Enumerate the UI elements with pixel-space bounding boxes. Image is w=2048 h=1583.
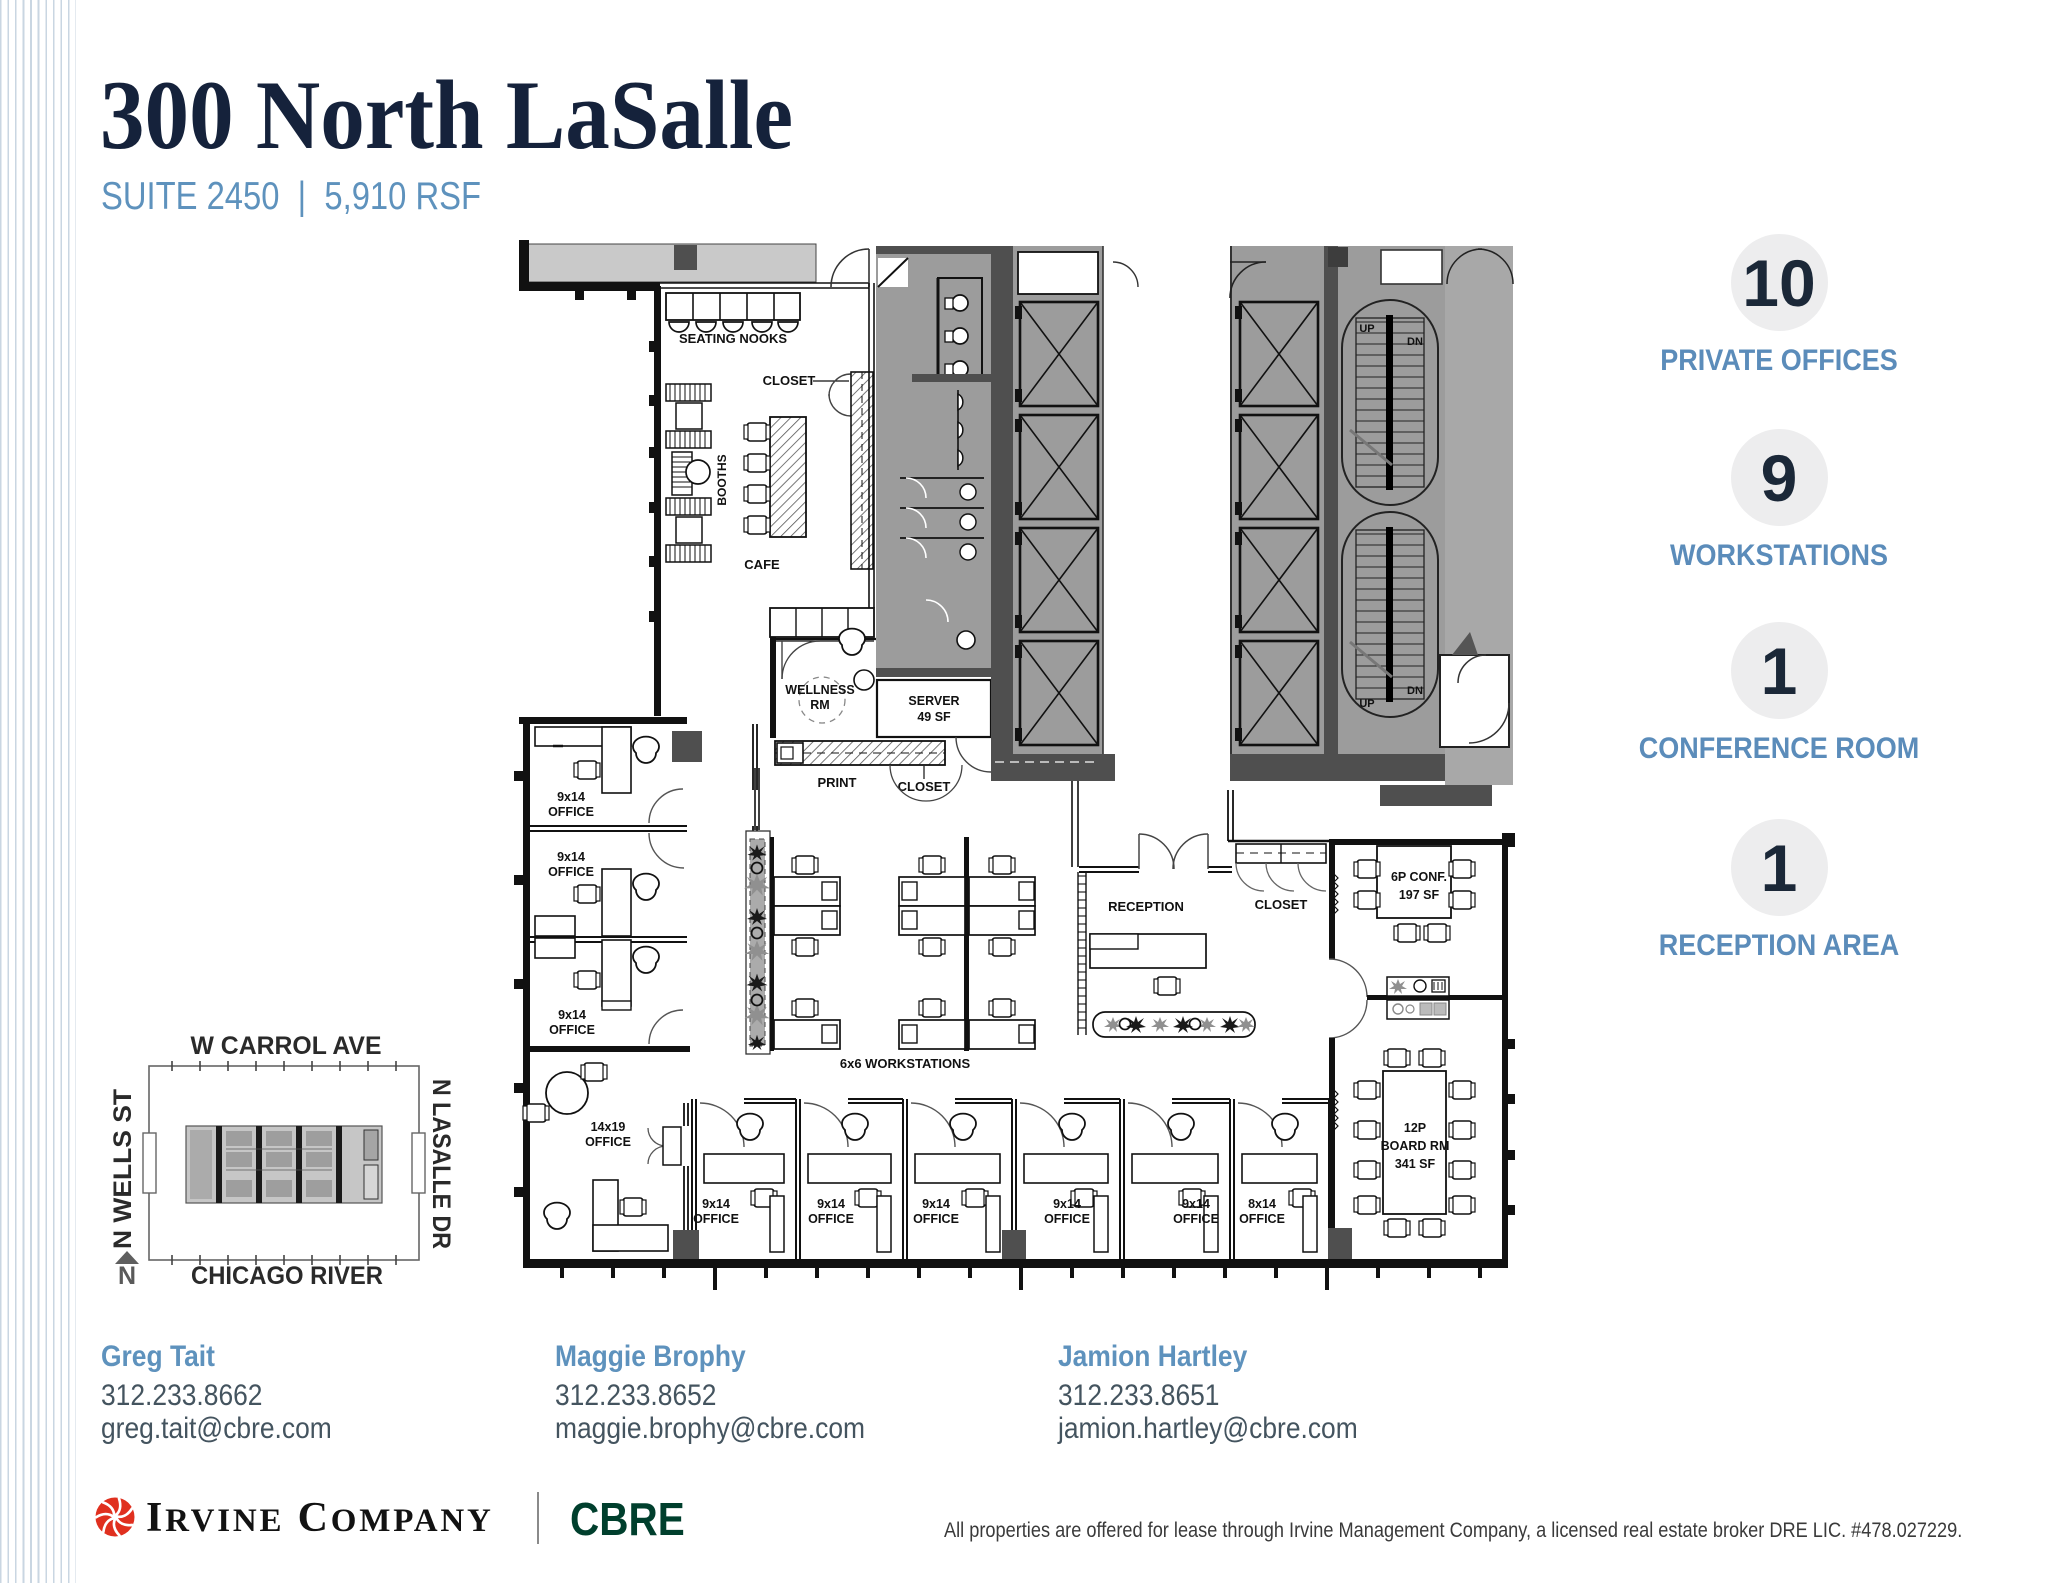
- svg-text:IRVINE COMPANY: IRVINE COMPANY: [146, 1495, 494, 1540]
- svg-text:UP: UP: [1359, 323, 1374, 335]
- svg-text:OFFICE: OFFICE: [1173, 1212, 1219, 1226]
- svg-text:9x14: 9x14: [557, 850, 585, 864]
- svg-text:W CARROL AVE: W CARROL AVE: [191, 1032, 382, 1060]
- svg-text:9x14: 9x14: [817, 1197, 845, 1211]
- svg-text:9x14: 9x14: [1053, 1197, 1081, 1211]
- svg-text:12P: 12P: [1404, 1121, 1426, 1135]
- svg-text:8x14: 8x14: [1248, 1197, 1276, 1211]
- svg-text:UP: UP: [1359, 698, 1374, 710]
- svg-text:DN: DN: [1407, 336, 1423, 348]
- svg-text:OFFICE: OFFICE: [693, 1212, 739, 1226]
- svg-text:OFFICE: OFFICE: [1239, 1212, 1285, 1226]
- svg-text:OFFICE: OFFICE: [548, 805, 594, 819]
- svg-text:CHICAGO RIVER: CHICAGO RIVER: [191, 1262, 383, 1290]
- svg-text:49 SF: 49 SF: [917, 710, 951, 724]
- svg-text:CLOSET: CLOSET: [898, 779, 951, 794]
- svg-text:9x14: 9x14: [1182, 1197, 1210, 1211]
- svg-text:6x6 WORKSTATIONS: 6x6 WORKSTATIONS: [840, 1056, 971, 1071]
- svg-text:9x14: 9x14: [702, 1197, 730, 1211]
- svg-text:DN: DN: [1407, 685, 1423, 697]
- svg-text:PRINT: PRINT: [818, 775, 857, 790]
- svg-text:SEATING NOOKS: SEATING NOOKS: [679, 331, 787, 346]
- svg-text:WELLNESS: WELLNESS: [785, 683, 854, 697]
- svg-text:RECEPTION: RECEPTION: [1108, 899, 1184, 914]
- svg-text:N WELLS ST: N WELLS ST: [109, 1089, 137, 1249]
- svg-text:BOARD RM: BOARD RM: [1381, 1139, 1450, 1153]
- svg-text:341 SF: 341 SF: [1395, 1157, 1436, 1171]
- svg-text:OFFICE: OFFICE: [808, 1212, 854, 1226]
- svg-text:BOOTHS: BOOTHS: [715, 454, 729, 505]
- svg-text:CAFE: CAFE: [744, 557, 780, 572]
- svg-text:OFFICE: OFFICE: [585, 1135, 631, 1149]
- svg-text:RM: RM: [810, 698, 829, 712]
- svg-text:OFFICE: OFFICE: [1044, 1212, 1090, 1226]
- svg-text:SERVER: SERVER: [908, 694, 959, 708]
- svg-text:N: N: [118, 1262, 136, 1290]
- svg-text:CLOSET: CLOSET: [1255, 897, 1308, 912]
- svg-text:197 SF: 197 SF: [1399, 888, 1440, 902]
- svg-text:N LASALLE DR: N LASALLE DR: [427, 1079, 455, 1249]
- svg-text:OFFICE: OFFICE: [549, 1023, 595, 1037]
- svg-text:OFFICE: OFFICE: [548, 865, 594, 879]
- svg-text:9x14: 9x14: [922, 1197, 950, 1211]
- svg-text:CLOSET: CLOSET: [763, 373, 816, 388]
- svg-text:9x14: 9x14: [558, 1008, 586, 1022]
- svg-text:14x19: 14x19: [591, 1120, 626, 1134]
- svg-text:OFFICE: OFFICE: [913, 1212, 959, 1226]
- svg-text:6P CONF.: 6P CONF.: [1391, 870, 1447, 884]
- svg-text:9x14: 9x14: [557, 790, 585, 804]
